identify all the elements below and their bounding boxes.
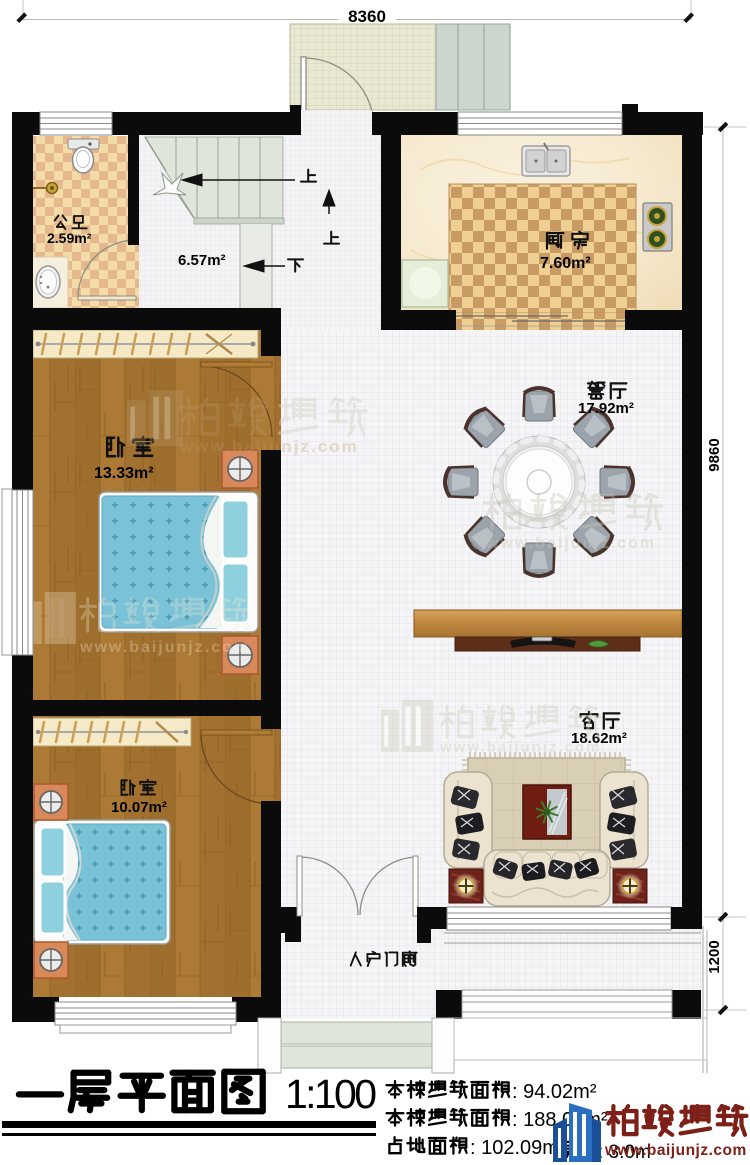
svg-text:: 94.02m²: : 94.02m²: [512, 1081, 597, 1103]
svg-text:9860: 9860: [706, 438, 723, 471]
svg-text:17.92m²: 17.92m²: [578, 400, 634, 417]
svg-text:13.33m²: 13.33m²: [94, 465, 154, 482]
svg-text:6.57m²: 6.57m²: [178, 252, 226, 269]
svg-text:1200: 1200: [706, 940, 723, 973]
svg-text:7.60m²: 7.60m²: [540, 255, 591, 272]
svg-text:www.baijunjz.com: www.baijunjz.com: [79, 639, 250, 656]
svg-text:1:100: 1:100: [285, 1071, 377, 1117]
svg-text:: 102.09m²: : 102.09m²: [470, 1137, 566, 1159]
svg-text:www.baijunjz.com: www.baijunjz.com: [485, 535, 656, 552]
svg-text:2.59m²: 2.59m²: [47, 230, 92, 246]
svg-text:10.07m²: 10.07m²: [111, 799, 167, 816]
svg-text:www.baijunjz.com: www.baijunjz.com: [604, 1142, 747, 1159]
svg-text:www.baijunjz.com: www.baijunjz.com: [439, 739, 601, 756]
svg-text:8360: 8360: [348, 7, 386, 26]
